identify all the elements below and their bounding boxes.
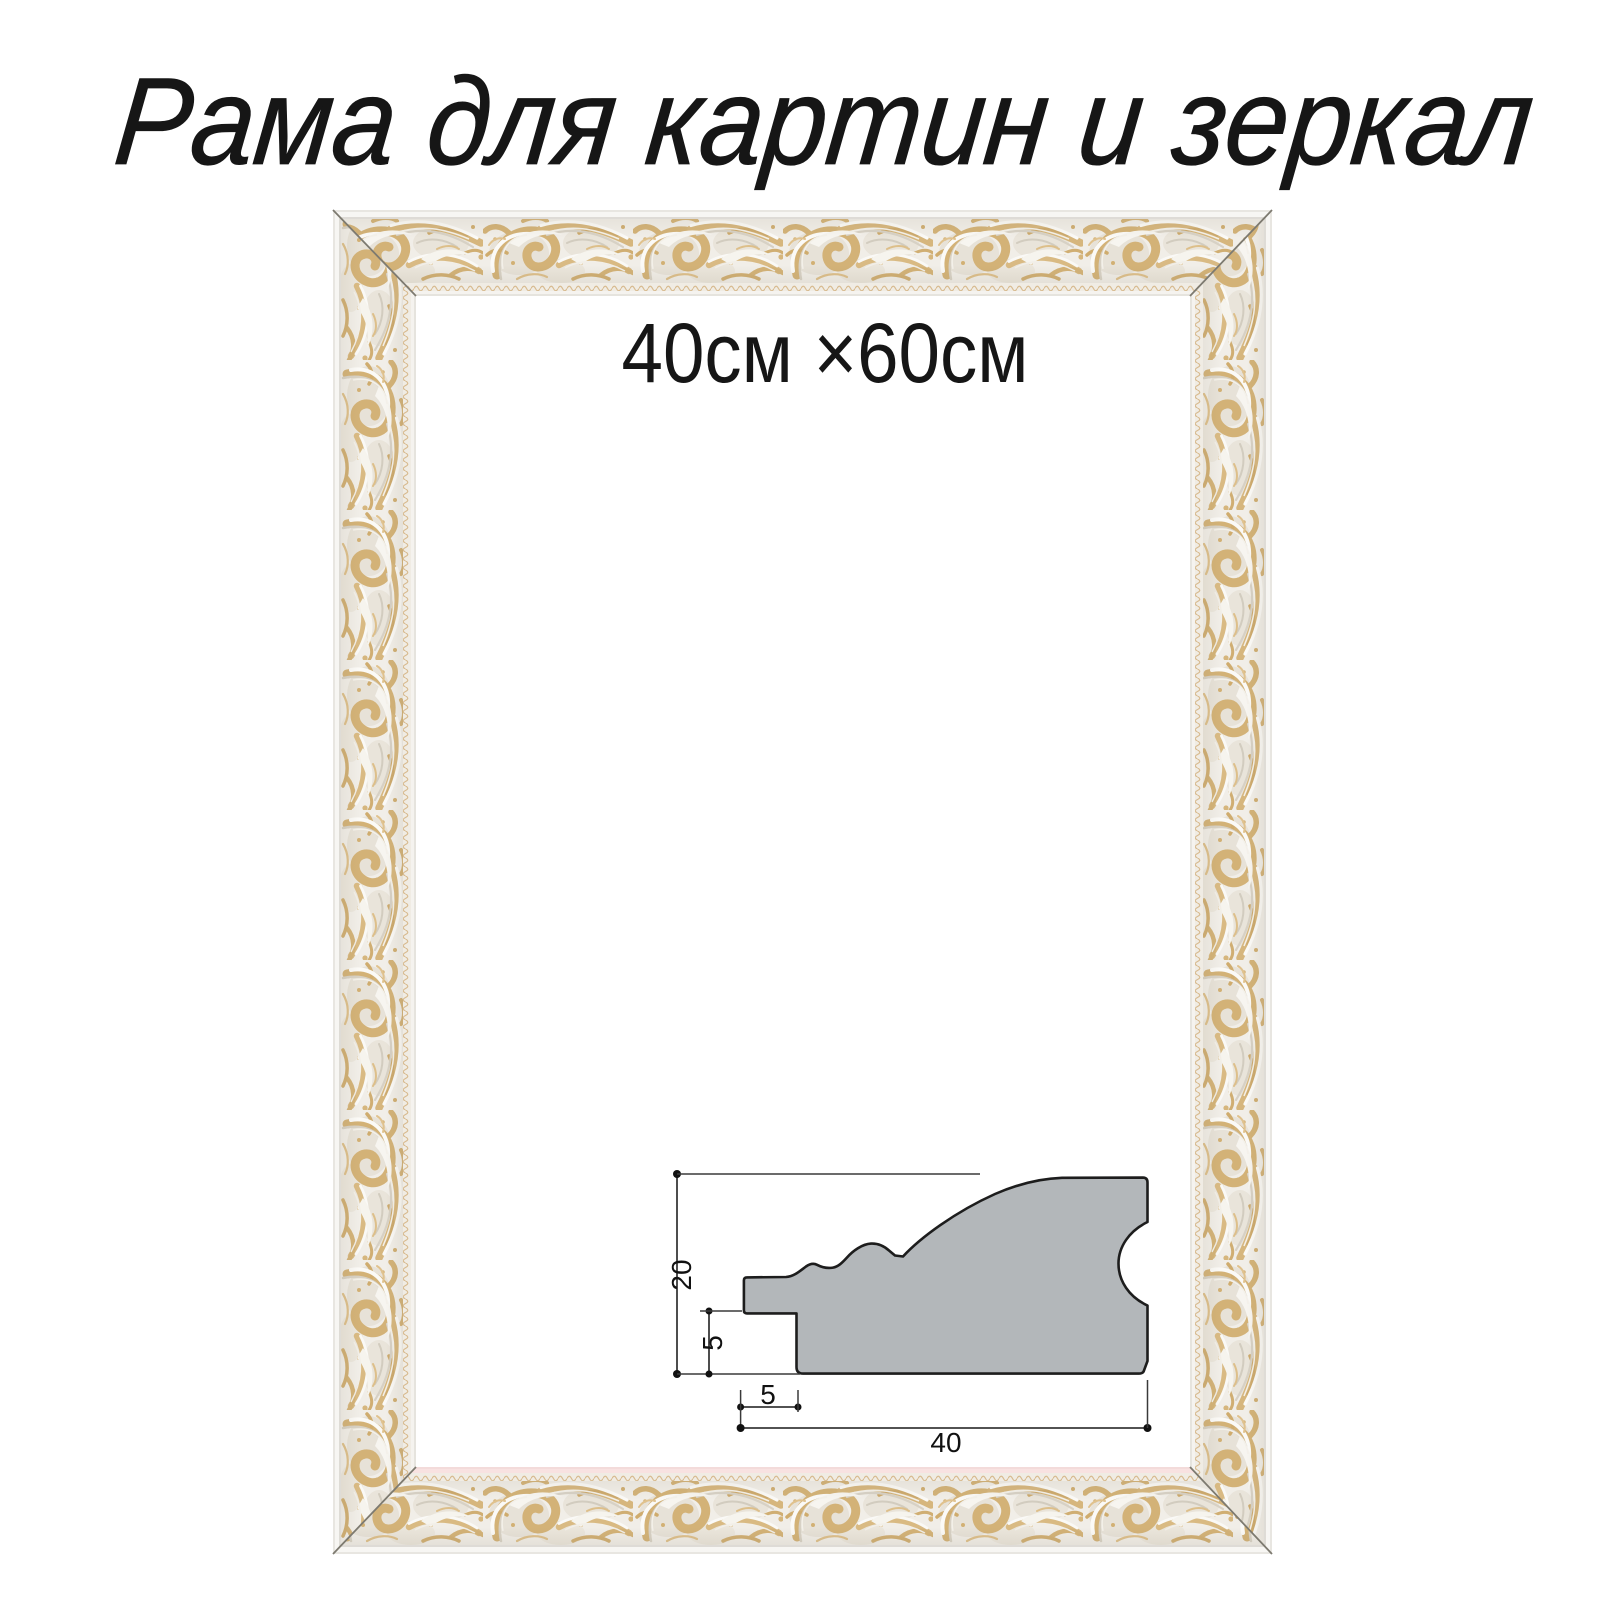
- svg-text:Рама для картин и зеркал: Рама для картин и зеркал: [109, 52, 1540, 191]
- svg-text:40см ×60см: 40см ×60см: [622, 306, 1029, 400]
- svg-text:5: 5: [760, 1379, 776, 1410]
- svg-text:5: 5: [697, 1335, 728, 1351]
- svg-text:20: 20: [666, 1259, 697, 1290]
- svg-text:40: 40: [930, 1427, 961, 1458]
